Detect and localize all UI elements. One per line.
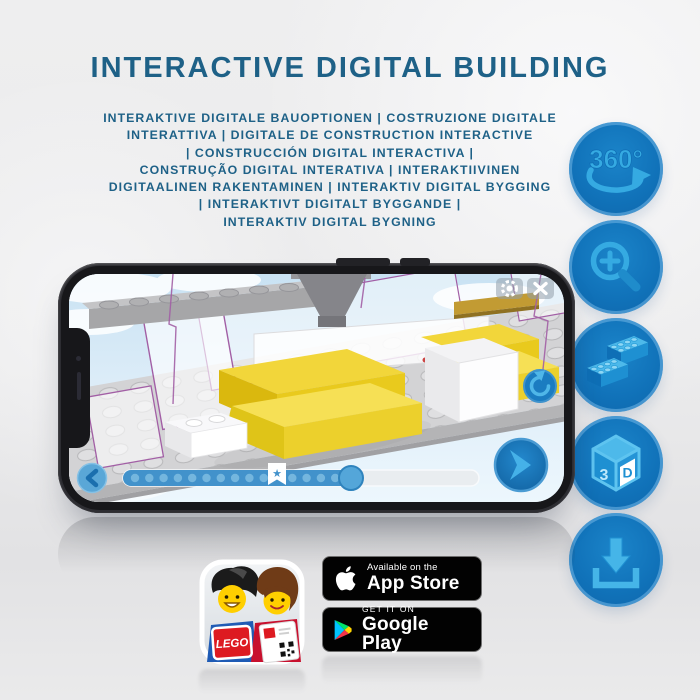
app-store-tagline: Available on the — [367, 563, 460, 573]
svg-text:3: 3 — [600, 467, 609, 484]
badge-reflection — [322, 656, 482, 684]
notch — [69, 328, 90, 448]
phone-volume-button — [336, 258, 390, 266]
subtitle-line: | INTERAKTIVT DIGITALT BYGGANDE | — [40, 196, 620, 213]
lego-app-icon[interactable]: LEGO — [199, 559, 305, 665]
phone-screen: ★ — [69, 274, 564, 502]
google-play-name: Google Play — [362, 615, 471, 655]
lego-builder-app-screen: ★ — [69, 274, 564, 502]
subtitle-line: CONSTRUÇÃO DIGITAL INTERATIVA | INTERAKT… — [40, 162, 620, 179]
phone-mockup: ★ — [58, 263, 575, 513]
phone-reflection — [58, 517, 575, 591]
settings-button[interactable] — [496, 278, 523, 299]
close-button[interactable] — [527, 278, 554, 299]
feature-badge-bricks — [569, 318, 663, 412]
app-icon-reflection — [199, 669, 305, 693]
app-store-badge[interactable]: Available on the App Store — [322, 556, 482, 601]
lego-scene — [69, 274, 564, 502]
subtitle-block: INTERAKTIVE DIGITALE BAUOPTIONEN | COSTR… — [40, 110, 620, 231]
instructions-booklet — [259, 621, 299, 663]
google-play-icon — [333, 619, 353, 641]
feature-badge-zoom — [569, 220, 663, 314]
apple-icon — [333, 564, 358, 593]
slider-thumb[interactable] — [339, 466, 363, 490]
phone-power-button — [400, 258, 430, 266]
subtitle-line: | CONSTRUCCIÓN DIGITAL INTERACTIVA | — [40, 145, 620, 162]
camera-icon — [76, 356, 81, 361]
subtitle-line: INTERATTIVA | DIGITALE DE CONSTRUCTION I… — [40, 127, 620, 144]
lego-bricks-icon — [569, 318, 663, 412]
subtitle-line: DIGITAALINEN RAKENTAMINEN | INTERAKTIV D… — [40, 179, 620, 196]
prev-step-button[interactable] — [78, 464, 107, 493]
download-icon — [569, 513, 663, 607]
poster-background: INTERACTIVE DIGITAL BUILDING INTERAKTIVE… — [0, 0, 700, 700]
google-play-badge[interactable]: GET IT ON Google Play — [322, 607, 482, 652]
speaker-icon — [77, 372, 81, 400]
next-step-button[interactable] — [495, 439, 547, 491]
feature-badge-360: 360° — [569, 122, 663, 216]
star-icon: ★ — [272, 468, 282, 480]
360-rotation-icon: 360° — [569, 122, 663, 216]
3d-view-icon: 3 D — [569, 416, 663, 510]
feature-badge-3d: 3 D — [569, 416, 663, 510]
reset-rotation-button[interactable] — [524, 370, 556, 402]
slider-dots — [131, 474, 340, 482]
app-store-name: App Store — [367, 574, 460, 594]
feature-badge-download — [569, 513, 663, 607]
page-title: INTERACTIVE DIGITAL BUILDING — [0, 52, 700, 85]
google-play-tagline: GET IT ON — [362, 605, 471, 614]
lego-logo: LEGO — [212, 626, 252, 660]
subtitle-line: INTERAKTIVE DIGITALE BAUOPTIONEN | COSTR… — [40, 110, 620, 127]
svg-text:LEGO: LEGO — [215, 637, 248, 651]
subtitle-line: INTERAKTIV DIGITAL BYGNING — [40, 214, 620, 231]
zoom-in-icon — [569, 220, 663, 314]
svg-text:D: D — [622, 465, 632, 481]
